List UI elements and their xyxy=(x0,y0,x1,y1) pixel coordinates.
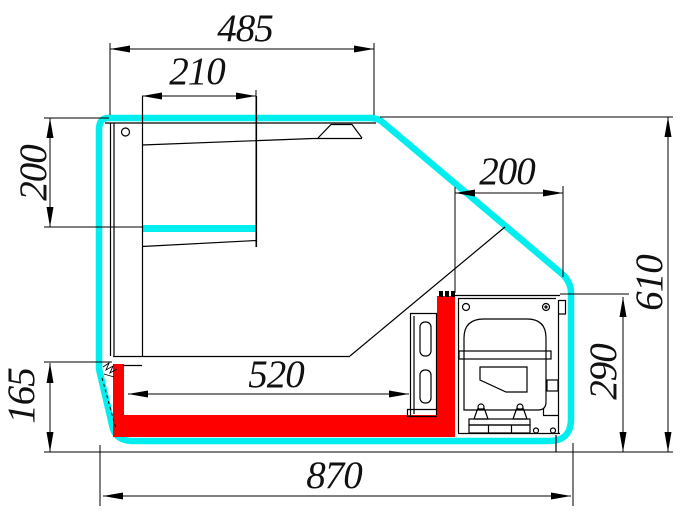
compressor-label-plate xyxy=(480,367,527,392)
dim-label-165: 165 xyxy=(0,368,43,424)
dim-label-485: 485 xyxy=(217,7,273,50)
base-roller-right-icon xyxy=(551,428,556,433)
engineering-drawing-canvas: 485 210 200 200 610 290 520 165 870 xyxy=(0,0,690,518)
compressor-rail xyxy=(469,419,530,425)
bracket-slot-top xyxy=(420,322,431,356)
drawing-page: 485 210 200 200 610 290 520 165 870 xyxy=(0,0,690,518)
compressor-fitting-stub xyxy=(547,380,558,391)
basin-mounting-tabs xyxy=(439,291,455,297)
compressor-dome xyxy=(464,319,546,410)
screw-right-icon xyxy=(543,304,550,311)
base-roller-left-icon xyxy=(534,428,539,433)
dim-label-200-left: 200 xyxy=(12,145,55,201)
screw-left-icon xyxy=(463,304,470,311)
dim-label-210: 210 xyxy=(169,50,225,93)
dim-label-610: 610 xyxy=(628,255,671,311)
bracket-slot-bottom xyxy=(420,370,431,403)
vent-hole xyxy=(122,128,130,136)
dim-label-290: 290 xyxy=(582,344,625,400)
compressor-band xyxy=(459,351,551,359)
dim-label-520: 520 xyxy=(248,353,304,396)
dim-label-870: 870 xyxy=(306,454,362,497)
compressor-base-block xyxy=(469,425,530,433)
dim-label-200-machine: 200 xyxy=(479,150,535,193)
screw-right-center-icon xyxy=(545,306,547,308)
